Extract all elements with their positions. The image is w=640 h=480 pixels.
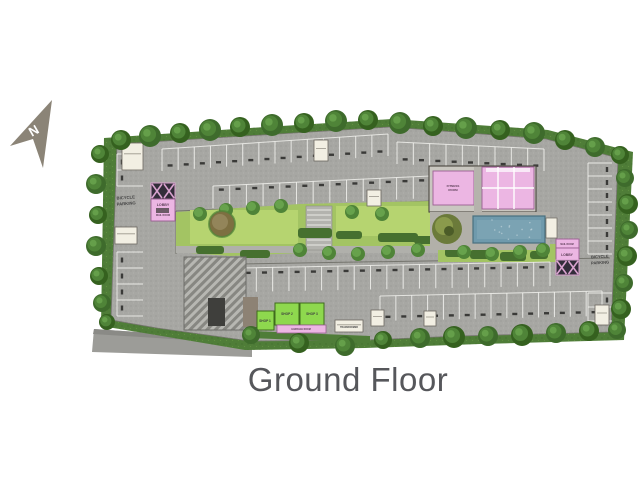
- north-arrow: N: [10, 100, 52, 168]
- bicycle-parking-right-label: BICYCLE: [591, 254, 609, 260]
- lobby-left-label: LOBBY: [157, 203, 170, 207]
- bicycle-parking-right-label2: PARKING: [591, 260, 609, 266]
- floor-plan-image: N BICYCLE PARKING LOBBY MAIL ROOM FITNES…: [0, 0, 640, 480]
- shop2-label: SHOP 2: [281, 312, 293, 316]
- mail-room-left-label: MAIL ROOM: [156, 214, 170, 217]
- shop3-label: SHOP 3: [306, 312, 318, 316]
- fitness-room-label2: ROOM: [448, 188, 458, 192]
- shop1-label: SHOP 1: [259, 319, 271, 323]
- ground-floor-plan: N BICYCLE PARKING LOBBY MAIL ROOM FITNES…: [0, 0, 640, 480]
- mail-room-right-label: MAIL ROOM: [560, 243, 573, 246]
- page-title: Ground Floor: [248, 361, 448, 398]
- garbage-room-label: GARBAGE ROOM: [291, 328, 311, 331]
- lobby-right-label: LOBBY: [561, 253, 574, 257]
- transformer-label: TRANSFORMER: [340, 326, 358, 329]
